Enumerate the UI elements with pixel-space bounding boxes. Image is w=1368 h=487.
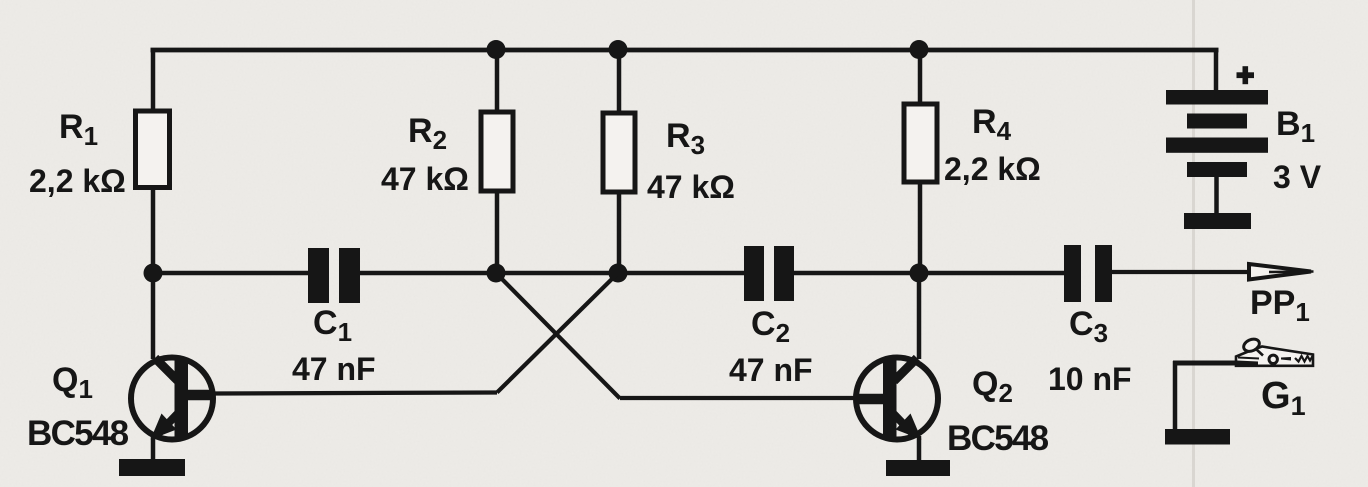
svg-text:10 nF: 10 nF [1048,361,1132,397]
svg-text:2,2 kΩ: 2,2 kΩ [29,163,126,199]
svg-text:47 nF: 47 nF [292,351,376,387]
svg-text:3 V: 3 V [1273,159,1322,195]
svg-text:47 kΩ: 47 kΩ [647,169,735,205]
svg-text:2,2 kΩ: 2,2 kΩ [944,151,1041,187]
svg-text:47 kΩ: 47 kΩ [381,161,469,197]
svg-text:47 nF: 47 nF [729,352,813,388]
svg-text:BC548: BC548 [27,414,129,453]
svg-text:BC548: BC548 [947,419,1049,458]
